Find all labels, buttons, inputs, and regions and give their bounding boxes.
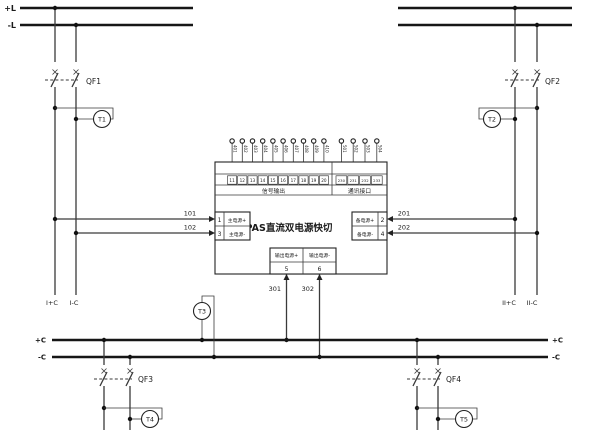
terminal-label: 主电源+	[228, 217, 246, 224]
breaker-qf3-label: QF3	[138, 375, 153, 384]
terminal-num: 230	[338, 178, 346, 183]
terminal-num: 3	[218, 231, 222, 238]
signal-section-label: 信号输出	[262, 187, 285, 195]
terminal-num: 18	[301, 178, 307, 183]
indicator-t3: T3	[194, 296, 217, 359]
terminal-num: 1	[218, 217, 222, 224]
indicator-t5-label: T5	[459, 416, 468, 424]
arrow-icon	[387, 216, 393, 222]
junction-dot	[102, 338, 106, 342]
wire-201-label: 201	[398, 210, 410, 218]
terminal-label: 输出电源+	[275, 252, 298, 259]
feeder-I-pos-label: I+C	[46, 299, 58, 307]
breaker-qf1-label: QF1	[86, 77, 101, 86]
main-supply-wires: 101 102	[53, 210, 215, 237]
device-title: DPAS直流双电源快切	[238, 222, 333, 234]
junction-dot	[53, 217, 57, 221]
wire-101-label: 101	[184, 210, 196, 218]
wire-tag: 504	[377, 145, 382, 153]
breaker-qf1: QF1	[45, 70, 101, 88]
terminal-num: 13	[250, 178, 256, 183]
backup-supply-terminal-block: 备电源+ 备电源- 2 4	[352, 212, 387, 240]
terminal-num: 2	[381, 217, 385, 224]
wire-tag: 407	[294, 145, 299, 153]
terminal-num: 14	[260, 178, 266, 183]
wire-tag: 406	[284, 145, 289, 153]
terminal-ring	[271, 139, 275, 143]
wire-202-label: 202	[398, 224, 410, 232]
terminal-num: 16	[280, 178, 286, 183]
bus-neg-C-label-right: -C	[552, 354, 560, 362]
bus-neg-L-label: -L	[8, 21, 16, 30]
arrow-icon	[209, 230, 215, 236]
bus-pos-C-label-right: +C	[552, 337, 563, 345]
terminal-num: 17	[291, 178, 297, 183]
junction-dot	[74, 231, 78, 235]
junction-dot	[436, 417, 440, 421]
wire-302-label: 302	[302, 285, 314, 293]
indicator-t4: T4	[102, 406, 162, 428]
terminal-ring	[339, 139, 343, 143]
indicator-t5: T5	[415, 406, 477, 428]
junction-dot	[200, 338, 204, 342]
junction-dot	[53, 6, 57, 10]
terminal-label: 备电源-	[357, 231, 373, 238]
wire-tag: 502	[354, 145, 359, 153]
arrow-icon	[317, 274, 323, 280]
terminal-label: 主电源-	[229, 231, 245, 238]
feeder-II-pos-label: II+C	[502, 299, 516, 307]
wire-tag: 401	[233, 145, 238, 153]
control-bus: +C -C +C -C	[35, 337, 563, 362]
terminal-num: 4	[381, 231, 385, 238]
wire-102-label: 102	[184, 224, 196, 232]
bus-pos-C-label-left: +C	[35, 337, 46, 345]
terminal-num: 20	[321, 178, 327, 183]
terminal-ring	[375, 139, 379, 143]
breaker-qf2: QF2	[505, 70, 560, 88]
indicator-t2: T2	[479, 106, 539, 128]
terminal-num: 5	[285, 266, 289, 273]
breaker-qf2-label: QF2	[545, 77, 560, 86]
wire-tag: 403	[253, 145, 258, 153]
terminal-ring	[322, 139, 326, 143]
terminal-num: 19	[311, 178, 317, 183]
terminal-num: 233	[373, 178, 381, 183]
dual-power-schematic: +L -L QF1 T1 I+C I-C	[0, 0, 600, 430]
junction-dot	[513, 217, 517, 221]
terminal-ring	[351, 139, 355, 143]
terminal-ring	[281, 139, 285, 143]
junction-dot	[212, 355, 216, 359]
indicator-t3-label: T3	[197, 308, 206, 316]
backup-supply-wires: 201 202	[387, 210, 539, 237]
indicator-t2-label: T2	[487, 116, 496, 124]
indicator-t4-label: T4	[145, 416, 154, 424]
wire-tag: 404	[263, 145, 268, 153]
junction-dot	[128, 417, 132, 421]
schematic-page: +L -L QF1 T1 I+C I-C	[0, 0, 600, 430]
breaker-qf4: QF4	[407, 369, 461, 387]
breaker-qf4-label: QF4	[446, 375, 461, 384]
output-terminal-block: 输出电源+ 输出电源- 5 6	[270, 248, 336, 274]
terminal-ring	[291, 139, 295, 143]
incoming-source-2: QF2 T2 II+C II-C	[398, 6, 572, 307]
terminal-ring	[363, 139, 367, 143]
terminal-label: 输出电源-	[309, 252, 330, 259]
junction-dot	[513, 6, 517, 10]
terminal-num: 12	[240, 178, 246, 183]
bus-pos-L-label: +L	[4, 4, 16, 13]
wire-tag: 405	[273, 145, 278, 153]
arrow-icon	[387, 230, 393, 236]
terminal-label: 备电源+	[356, 217, 374, 224]
incoming-source-1: +L -L QF1 T1 I+C I-C	[4, 4, 193, 307]
junction-dot	[436, 355, 440, 359]
wire-tag: 503	[366, 145, 371, 153]
wire-tag: 408	[304, 145, 309, 153]
junction-dot	[513, 117, 517, 121]
indicator-t1-label: T1	[97, 116, 106, 124]
terminal-ring	[230, 139, 234, 143]
bus-neg-C-label-left: -C	[38, 354, 46, 362]
terminal-ring	[261, 139, 265, 143]
wire-tag: 402	[243, 145, 248, 153]
contact-x-marks	[53, 70, 79, 75]
terminal-num: 15	[270, 178, 276, 183]
outgoing-feeder-2: QF4 T5	[407, 338, 477, 430]
terminal-num: 232	[361, 178, 369, 183]
terminal-ring	[301, 139, 305, 143]
feeder-I-neg-label: I-C	[70, 299, 79, 307]
terminal-num: 11	[229, 178, 235, 183]
output-wires: 301 302	[269, 274, 323, 359]
wire-tag: 501	[342, 145, 347, 153]
outgoing-feeder-1: QF3 T4	[94, 338, 162, 430]
main-supply-terminal-block: 1 3 主电源+ 主电源-	[215, 212, 250, 240]
junction-dot	[535, 23, 539, 27]
terminal-num: 231	[350, 178, 358, 183]
wire-tag: 409	[314, 145, 319, 153]
terminal-ring	[312, 139, 316, 143]
comm-section-label: 通讯接口	[348, 187, 371, 195]
junction-dot	[535, 231, 539, 235]
feeder-II-neg-label: II-C	[527, 299, 538, 307]
arrow-icon	[209, 216, 215, 222]
wire-tag: 410	[324, 145, 329, 153]
dpas-device: 401 402 403 404 405 406 407 408 409 410 …	[215, 139, 387, 274]
terminal-ring	[240, 139, 244, 143]
wire-301-label: 301	[269, 285, 281, 293]
arrow-icon	[284, 274, 290, 280]
junction-dot	[74, 117, 78, 121]
junction-dot	[415, 338, 419, 342]
breaker-qf3: QF3	[94, 369, 153, 387]
junction-dot	[128, 355, 132, 359]
junction-dot	[74, 23, 78, 27]
contact-x-marks	[513, 70, 540, 75]
indicator-t1: T1	[53, 106, 113, 128]
contact-x-marks	[415, 369, 441, 374]
terminal-ring	[250, 139, 254, 143]
terminal-num: 6	[318, 266, 322, 273]
